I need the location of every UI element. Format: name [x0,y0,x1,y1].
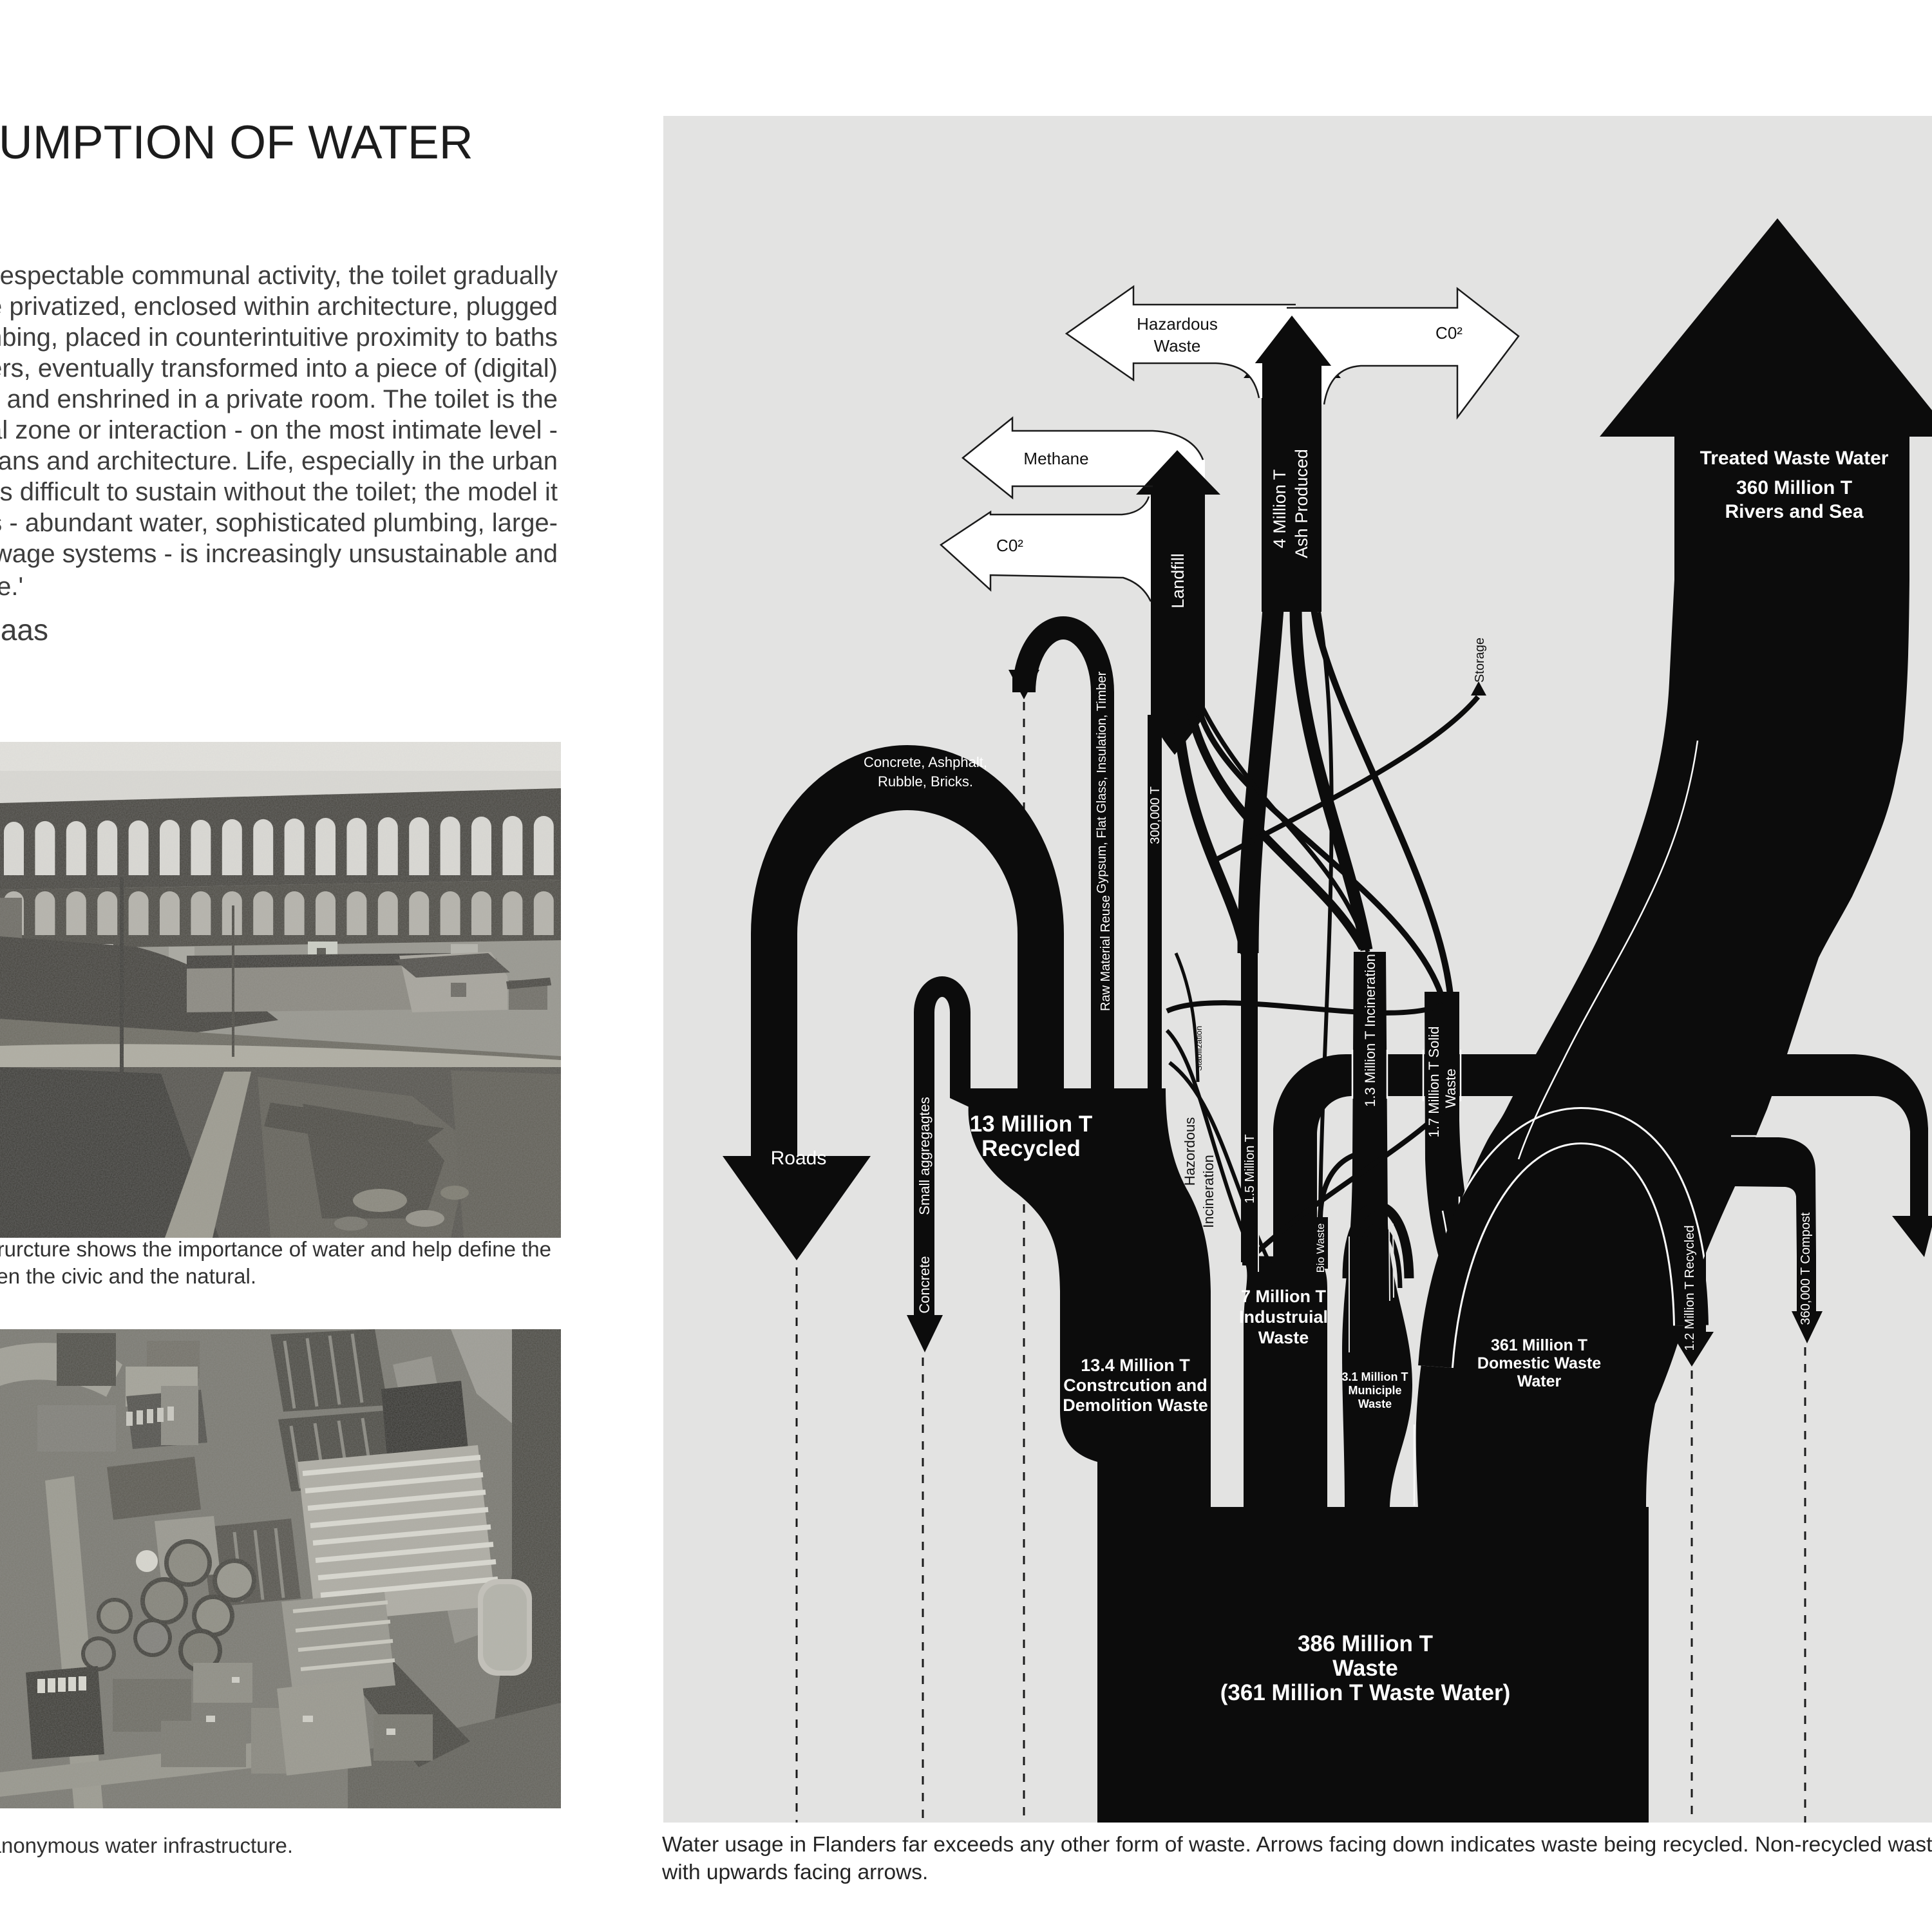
svg-text:1.5 Million T: 1.5 Million T [1243,1134,1257,1203]
svg-text:C0²: C0² [996,536,1023,555]
svg-text:Rubble, Bricks.: Rubble, Bricks. [878,773,973,790]
svg-text:13.4 Million T: 13.4 Million T [1081,1356,1190,1375]
svg-text:7 Million T: 7 Million T [1241,1287,1327,1306]
svg-text:Waste: Waste [1258,1328,1309,1347]
svg-text:1.7 Million T Solid: 1.7 Million T Solid [1426,1027,1442,1138]
svg-text:Constrcution and: Constrcution and [1063,1376,1207,1395]
svg-text:360,000 T Compost: 360,000 T Compost [1799,1212,1813,1325]
svg-text:300,000 T: 300,000 T [1148,786,1162,844]
svg-text:1.2 Million T Recycled: 1.2 Million T Recycled [1683,1226,1697,1351]
svg-text:Municiple: Municiple [1348,1384,1401,1397]
svg-text:Treated Waste Water: Treated Waste Water [1700,448,1889,469]
svg-text:Hazardous: Hazardous [1137,314,1218,334]
svg-text:(361 Million T Waste Water): (361 Million T Waste Water) [1220,1680,1511,1705]
svg-text:361 Million T: 361 Million T [1491,1336,1587,1354]
svg-text:Small aggregagtes: Small aggregagtes [916,1097,933,1215]
svg-text:4 Million T: 4 Million T [1270,469,1289,549]
svg-text:Incineration: Incineration [1200,1155,1217,1228]
svg-text:Hazordous: Hazordous [1182,1117,1198,1186]
svg-text:Landfill: Landfill [1168,553,1188,609]
svg-text:Rivers and Sea: Rivers and Sea [1725,501,1863,522]
svg-text:13 Million T: 13 Million T [970,1112,1093,1137]
svg-text:C0²: C0² [1435,323,1463,343]
svg-text:Methane: Methane [1023,449,1088,468]
svg-text:Concrete, Ashphalt,: Concrete, Ashphalt, [864,754,987,770]
svg-text:Roads: Roads [771,1148,827,1169]
svg-text:Demolition Waste: Demolition Waste [1063,1396,1208,1415]
svg-text:Waste: Waste [1443,1068,1459,1108]
svg-text:Concrete: Concrete [916,1256,933,1313]
svg-text:Storage: Storage [1473,638,1487,683]
svg-text:Waste: Waste [1358,1397,1392,1410]
svg-text:Waste: Waste [1154,336,1201,355]
svg-text:386 Million T: 386 Million T [1298,1631,1433,1656]
svg-text:Domestic Waste: Domestic Waste [1477,1354,1601,1372]
svg-text:Stabilization: Stabilization [1194,1026,1204,1071]
svg-text:Ash Produced: Ash Produced [1292,449,1311,558]
svg-text:Raw Material Reuse: Raw Material Reuse [1099,895,1113,1011]
svg-text:Gypsum, Flat Glass, Insulation: Gypsum, Flat Glass, Insulation, Timber [1095,671,1109,893]
svg-text:Recycled: Recycled [981,1136,1081,1161]
svg-text:Industruial: Industruial [1239,1307,1328,1327]
svg-text:3.1 Million T: 3.1 Million T [1341,1370,1408,1383]
svg-text:1.3 Million T Incineration: 1.3 Million T Incineration [1362,954,1378,1107]
svg-text:Bio Waste: Bio Waste [1314,1224,1327,1273]
svg-text:Waste: Waste [1332,1656,1398,1681]
svg-text:360 Million T: 360 Million T [1736,477,1852,498]
svg-text:Water: Water [1517,1372,1562,1390]
